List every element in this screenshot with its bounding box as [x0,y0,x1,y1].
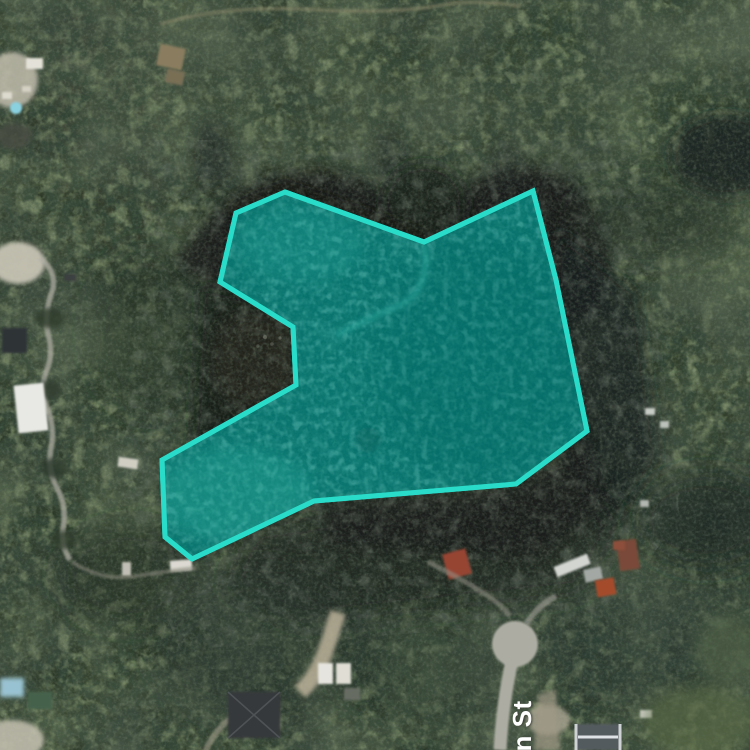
svg-text:n St: n St [507,700,537,750]
